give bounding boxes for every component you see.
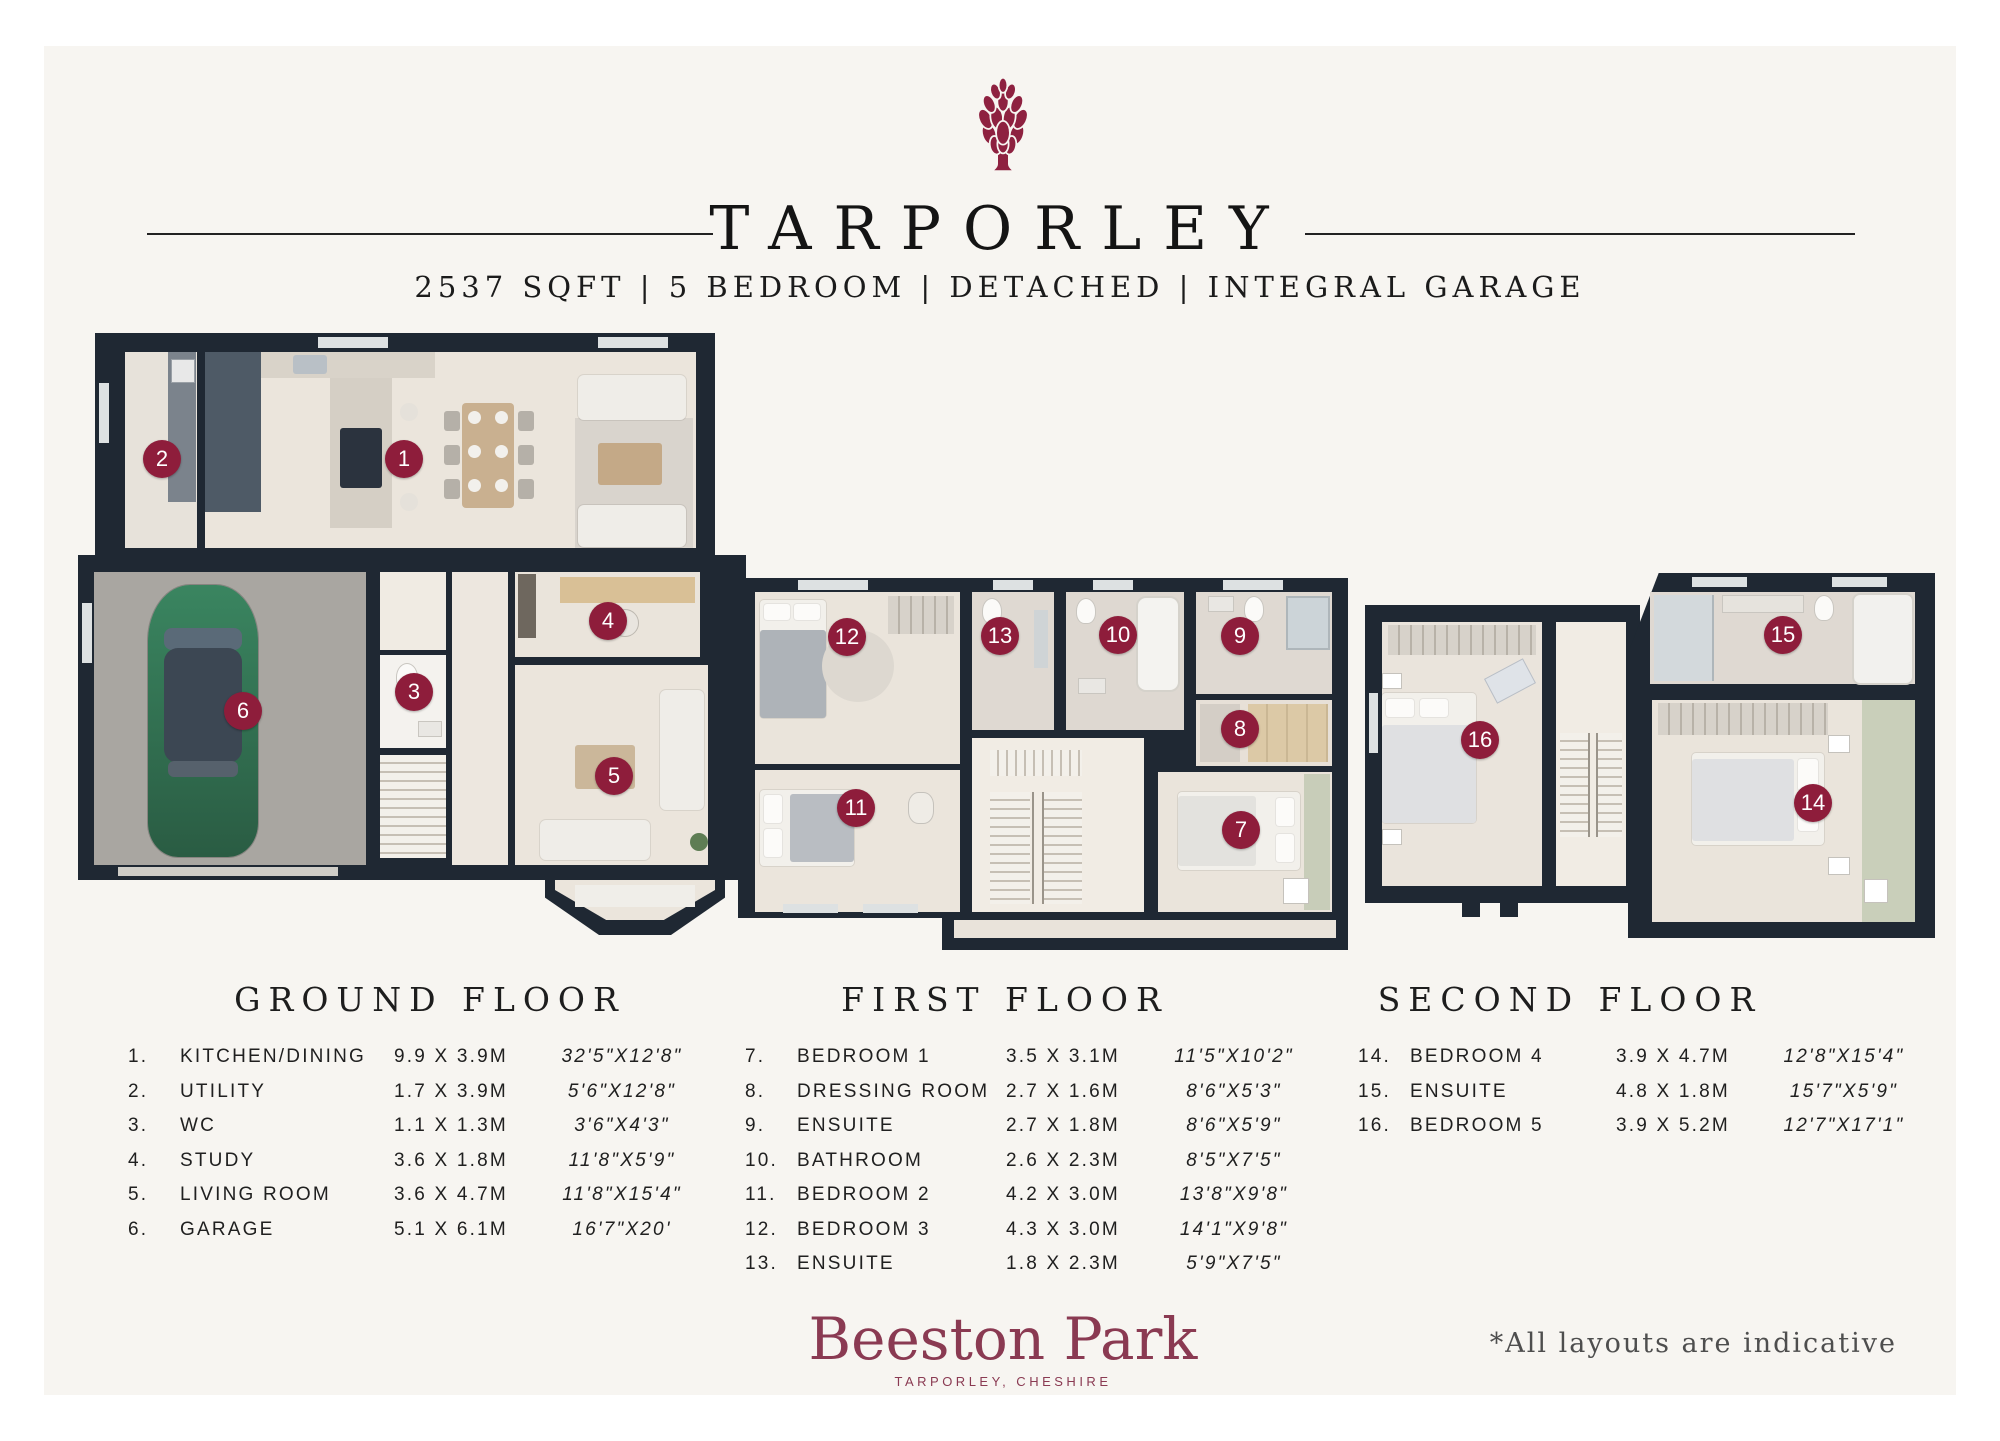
room-name: UTILITY — [180, 1081, 394, 1103]
room-name: WC — [180, 1115, 394, 1137]
car-rear-window — [168, 761, 238, 777]
room-name: ENSUITE — [1410, 1081, 1616, 1103]
room-imperial-size: 3'6"X4'3" — [546, 1115, 698, 1137]
room-name: BEDROOM 3 — [797, 1219, 1006, 1241]
room-metric-size: 3.5 X 3.1M — [1006, 1046, 1158, 1068]
kitchen-cabinets — [205, 352, 261, 512]
plant — [690, 833, 708, 851]
bed-pillow — [764, 604, 790, 620]
window — [318, 337, 388, 348]
room-badge-5: 5 — [595, 757, 633, 795]
developer-logo: Beeston Park — [503, 1305, 1503, 1373]
room-imperial-size: 8'6"X5'9" — [1158, 1115, 1310, 1137]
nightstand — [1828, 857, 1850, 875]
room-number: 8. — [745, 1081, 797, 1103]
room-metric-size: 4.3 X 3.0M — [1006, 1219, 1158, 1241]
room-list-row: 7. BEDROOM 1 3.5 X 3.1M 11'5"X10'2" — [745, 1040, 1310, 1075]
hob — [340, 428, 382, 488]
room-imperial-size: 14'1"X9'8" — [1158, 1219, 1310, 1241]
room-badge-7: 7 — [1222, 811, 1260, 849]
coffee-table — [598, 443, 662, 485]
toilet — [1814, 595, 1834, 621]
room-name: BATHROOM — [797, 1150, 1006, 1172]
room-badge-6: 6 — [224, 692, 262, 730]
window — [993, 580, 1033, 590]
room-imperial-size: 11'8"X15'4" — [546, 1184, 698, 1206]
window — [1832, 577, 1887, 587]
chair — [908, 792, 934, 824]
vanity — [1722, 595, 1804, 613]
room-list-row: 15. ENSUITE 4.8 X 1.8M 15'7"X5'9" — [1358, 1075, 1920, 1110]
room-name: BEDROOM 2 — [797, 1184, 1006, 1206]
car-windshield — [164, 628, 242, 650]
room-number: 13. — [745, 1253, 797, 1275]
room-imperial-size: 15'7"X5'9" — [1768, 1081, 1920, 1103]
chimney-notch — [1462, 903, 1480, 917]
room-list-row: 3. WC 1.1 X 1.3M 3'6"X4'3" — [128, 1109, 698, 1144]
property-summary: 2537 SQFT | 5 BEDROOM | DETACHED | INTEG… — [0, 270, 2000, 304]
sofa — [540, 820, 650, 860]
plate — [495, 411, 508, 424]
dining-chair — [444, 445, 460, 465]
dining-chair — [444, 479, 460, 499]
room-list-row: 16. BEDROOM 5 3.9 X 5.2M 12'7"X17'1" — [1358, 1109, 1920, 1144]
window — [863, 904, 918, 913]
room-number: 10. — [745, 1150, 797, 1172]
room-number: 4. — [128, 1150, 180, 1172]
ac-unit — [1283, 878, 1309, 904]
ground-hallway — [452, 572, 508, 865]
dining-chair — [518, 479, 534, 499]
chimney-notch — [1500, 903, 1518, 917]
room-number: 1. — [128, 1046, 180, 1068]
room-list-row: 13. ENSUITE 1.8 X 2.3M 5'9"X7'5" — [745, 1247, 1310, 1282]
room-metric-size: 4.8 X 1.8M — [1616, 1081, 1768, 1103]
room-list-row: 12. BEDROOM 3 4.3 X 3.0M 14'1"X9'8" — [745, 1213, 1310, 1248]
staircase — [990, 792, 1030, 904]
stair-rail — [1032, 792, 1044, 904]
room-badge-9: 9 — [1221, 617, 1259, 655]
room-metric-size: 2.7 X 1.8M — [1006, 1115, 1158, 1137]
basin — [1078, 678, 1106, 694]
room-name: GARAGE — [180, 1219, 394, 1241]
room-imperial-size: 32'5"X12'8" — [546, 1046, 698, 1068]
artichoke-logo-icon — [962, 74, 1044, 174]
room-number: 12. — [745, 1219, 797, 1241]
room-badge-16: 16 — [1461, 721, 1499, 759]
second-floor-plan — [1362, 573, 1937, 938]
second-floor-room-list: 14. BEDROOM 4 3.9 X 4.7M 12'8"X15'4" 15.… — [1358, 1040, 1920, 1144]
room-badge-10: 10 — [1099, 616, 1137, 654]
window-seat — [575, 885, 695, 907]
room-number: 2. — [128, 1081, 180, 1103]
room-badge-13: 13 — [981, 617, 1019, 655]
room-number: 6. — [128, 1219, 180, 1241]
bed-pillow — [794, 604, 820, 620]
plate — [468, 411, 481, 424]
room-badge-11: 11 — [837, 789, 875, 827]
room-name: LIVING ROOM — [180, 1184, 394, 1206]
room-metric-size: 3.9 X 5.2M — [1616, 1115, 1768, 1137]
window — [82, 603, 92, 663]
wardrobe — [1658, 703, 1828, 735]
window — [1369, 693, 1378, 753]
shower — [1286, 596, 1330, 650]
bed-pillow — [1276, 834, 1294, 862]
room-list-row: 11. BEDROOM 2 4.2 X 3.0M 13'8"X9'8" — [745, 1178, 1310, 1213]
window — [1223, 580, 1283, 590]
room-name: KITCHEN/DINING — [180, 1046, 394, 1068]
room-list-row: 6. GARAGE 5.1 X 6.1M 16'7"X20' — [128, 1213, 698, 1248]
kitchen-sink — [293, 355, 327, 374]
title-rule-right — [1305, 233, 1855, 235]
wardrobe — [1248, 704, 1328, 762]
stair-rail — [1588, 733, 1598, 837]
sofa — [578, 375, 686, 420]
bed-pillow — [764, 829, 782, 857]
room-name: ENSUITE — [797, 1115, 1006, 1137]
window — [783, 904, 838, 913]
window — [798, 580, 868, 590]
page-title: TARPORLEY — [0, 194, 2000, 264]
bathtub — [1136, 596, 1180, 692]
dining-chair — [444, 411, 460, 431]
nightstand — [1828, 735, 1850, 753]
basin — [1208, 596, 1234, 612]
bed-blanket — [1692, 759, 1794, 841]
room-metric-size: 3.6 X 1.8M — [394, 1150, 546, 1172]
room-list-row: 2. UTILITY 1.7 X 3.9M 5'6"X12'8" — [128, 1075, 698, 1110]
plate — [495, 445, 508, 458]
first-corridor — [954, 920, 1336, 938]
first-floor-title: FIRST FLOOR — [705, 980, 1305, 1019]
room-name: BEDROOM 4 — [1410, 1046, 1616, 1068]
disclaimer-note: *All layouts are indicative — [1397, 1328, 1897, 1359]
room-list-row: 14. BEDROOM 4 3.9 X 4.7M 12'8"X15'4" — [1358, 1040, 1920, 1075]
sofa — [660, 690, 704, 810]
nightstand — [1382, 673, 1402, 689]
room-metric-size: 2.7 X 1.6M — [1006, 1081, 1158, 1103]
bar-stool — [400, 403, 418, 421]
bed-pillow — [1386, 699, 1414, 717]
room-list-row: 10. BATHROOM 2.6 X 2.3M 8'5"X7'5" — [745, 1144, 1310, 1179]
first-floor-room-list: 7. BEDROOM 1 3.5 X 3.1M 11'5"X10'2" 8. D… — [745, 1040, 1310, 1282]
room-name: BEDROOM 5 — [1410, 1115, 1616, 1137]
staircase — [990, 750, 1082, 776]
room-metric-size: 3.9 X 4.7M — [1616, 1046, 1768, 1068]
title-rule-left — [147, 233, 713, 235]
desk — [560, 577, 695, 603]
sofa — [578, 505, 686, 547]
room-imperial-size: 16'7"X20' — [546, 1219, 698, 1241]
ground-floor-title: GROUND FLOOR — [130, 980, 730, 1019]
room-number: 16. — [1358, 1115, 1410, 1137]
bed-pillow — [764, 795, 782, 823]
room-metric-size: 2.6 X 2.3M — [1006, 1150, 1158, 1172]
room-badge-14: 14 — [1794, 784, 1832, 822]
room-list-row: 9. ENSUITE 2.7 X 1.8M 8'6"X5'9" — [745, 1109, 1310, 1144]
room-imperial-size: 11'5"X10'2" — [1158, 1046, 1310, 1068]
shelf — [1034, 610, 1048, 668]
room-name: BEDROOM 1 — [797, 1046, 1006, 1068]
ground-stairs — [380, 755, 446, 858]
basin — [418, 721, 442, 737]
room-badge-1: 1 — [385, 440, 423, 478]
window — [99, 383, 109, 443]
window — [1692, 577, 1747, 587]
room-list-row: 8. DRESSING ROOM 2.7 X 1.6M 8'6"X5'3" — [745, 1075, 1310, 1110]
ground-floor-plan — [78, 333, 746, 935]
room-metric-size: 9.9 X 3.9M — [394, 1046, 546, 1068]
room-number: 11. — [745, 1184, 797, 1206]
washer — [171, 359, 195, 383]
room-number: 15. — [1358, 1081, 1410, 1103]
toilet — [1076, 598, 1096, 624]
bed-pillow — [1420, 699, 1448, 717]
room-imperial-size: 8'6"X5'3" — [1158, 1081, 1310, 1103]
room-imperial-size: 11'8"X5'9" — [546, 1150, 698, 1172]
room-list-row: 1. KITCHEN/DINING 9.9 X 3.9M 32'5"X12'8" — [128, 1040, 698, 1075]
plate — [468, 445, 481, 458]
dining-chair — [518, 445, 534, 465]
room-metric-size: 3.6 X 4.7M — [394, 1184, 546, 1206]
dining-chair — [518, 411, 534, 431]
ac-unit — [1864, 879, 1888, 903]
room-metric-size: 1.1 X 1.3M — [394, 1115, 546, 1137]
wardrobe — [1388, 625, 1536, 655]
room-number: 3. — [128, 1115, 180, 1137]
bed-blanket — [760, 630, 826, 718]
room-name: STUDY — [180, 1150, 394, 1172]
room-metric-size: 1.7 X 3.9M — [394, 1081, 546, 1103]
bathtub — [1852, 593, 1914, 685]
room-badge-15: 15 — [1764, 616, 1802, 654]
developer-location: TARPORLEY, CHESHIRE — [503, 1374, 1503, 1389]
room-metric-size: 1.8 X 2.3M — [1006, 1253, 1158, 1275]
window — [1093, 580, 1133, 590]
room-number: 5. — [128, 1184, 180, 1206]
shower — [1654, 595, 1714, 681]
nightstand — [1382, 829, 1402, 845]
room-imperial-size: 13'8"X9'8" — [1158, 1184, 1310, 1206]
room-metric-size: 4.2 X 3.0M — [1006, 1184, 1158, 1206]
room-list-row: 5. LIVING ROOM 3.6 X 4.7M 11'8"X15'4" — [128, 1178, 698, 1213]
ground-floor-room-list: 1. KITCHEN/DINING 9.9 X 3.9M 32'5"X12'8"… — [128, 1040, 698, 1247]
window — [598, 337, 668, 348]
wardrobe — [888, 596, 954, 634]
room-name: DRESSING ROOM — [797, 1081, 1006, 1103]
room-number: 7. — [745, 1046, 797, 1068]
room-imperial-size: 8'5"X7'5" — [1158, 1150, 1310, 1172]
room-imperial-size: 12'8"X15'4" — [1768, 1046, 1920, 1068]
room-imperial-size: 12'7"X17'1" — [1768, 1115, 1920, 1137]
room-imperial-size: 5'6"X12'8" — [546, 1081, 698, 1103]
room-badge-8: 8 — [1221, 710, 1259, 748]
room-number: 14. — [1358, 1046, 1410, 1068]
bed-pillow — [1276, 798, 1294, 826]
bar-stool — [400, 493, 418, 511]
room-badge-3: 3 — [395, 673, 433, 711]
floorplan-brochure: { "header": { "logo": "artichoke-logo-ic… — [0, 0, 2000, 1441]
room-badge-2: 2 — [143, 440, 181, 478]
second-floor-title: SECOND FLOOR — [1270, 980, 1870, 1019]
hall-corridor — [380, 572, 446, 650]
room-number: 9. — [745, 1115, 797, 1137]
room-badge-4: 4 — [589, 602, 627, 640]
room-list-row: 4. STUDY 3.6 X 1.8M 11'8"X5'9" — [128, 1144, 698, 1179]
room-imperial-size: 5'9"X7'5" — [1158, 1253, 1310, 1275]
staircase — [1042, 792, 1082, 904]
plate — [468, 479, 481, 492]
room-badge-12: 12 — [828, 618, 866, 656]
plate — [495, 479, 508, 492]
room-metric-size: 5.1 X 6.1M — [394, 1219, 546, 1241]
bookshelf — [518, 574, 536, 638]
garage-door — [118, 867, 338, 876]
room-name: ENSUITE — [797, 1253, 1006, 1275]
